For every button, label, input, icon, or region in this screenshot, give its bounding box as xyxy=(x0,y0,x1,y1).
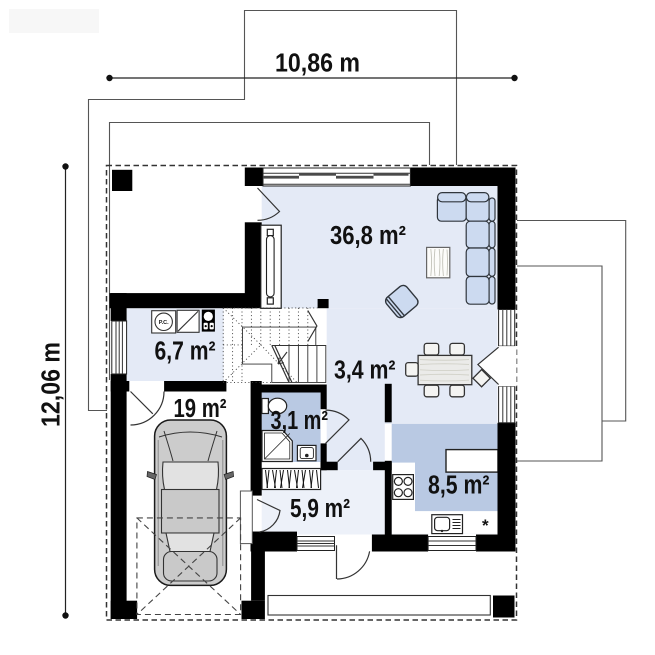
svg-text:6,7 m²: 6,7 m² xyxy=(155,338,216,366)
svg-text:5,9 m²: 5,9 m² xyxy=(290,495,350,523)
svg-text:10,86 m: 10,86 m xyxy=(275,50,360,78)
svg-text:12,06 m: 12,06 m xyxy=(38,342,66,427)
svg-text:3,1 m²: 3,1 m² xyxy=(271,407,329,435)
svg-text:36,8 m²: 36,8 m² xyxy=(330,222,406,250)
svg-text:P.C.: P.C. xyxy=(159,320,169,326)
svg-text:8,5 m²: 8,5 m² xyxy=(428,472,490,500)
svg-text:19 m²: 19 m² xyxy=(174,395,227,423)
svg-text:3,4 m²: 3,4 m² xyxy=(334,357,396,385)
svg-text:*: * xyxy=(482,516,489,535)
